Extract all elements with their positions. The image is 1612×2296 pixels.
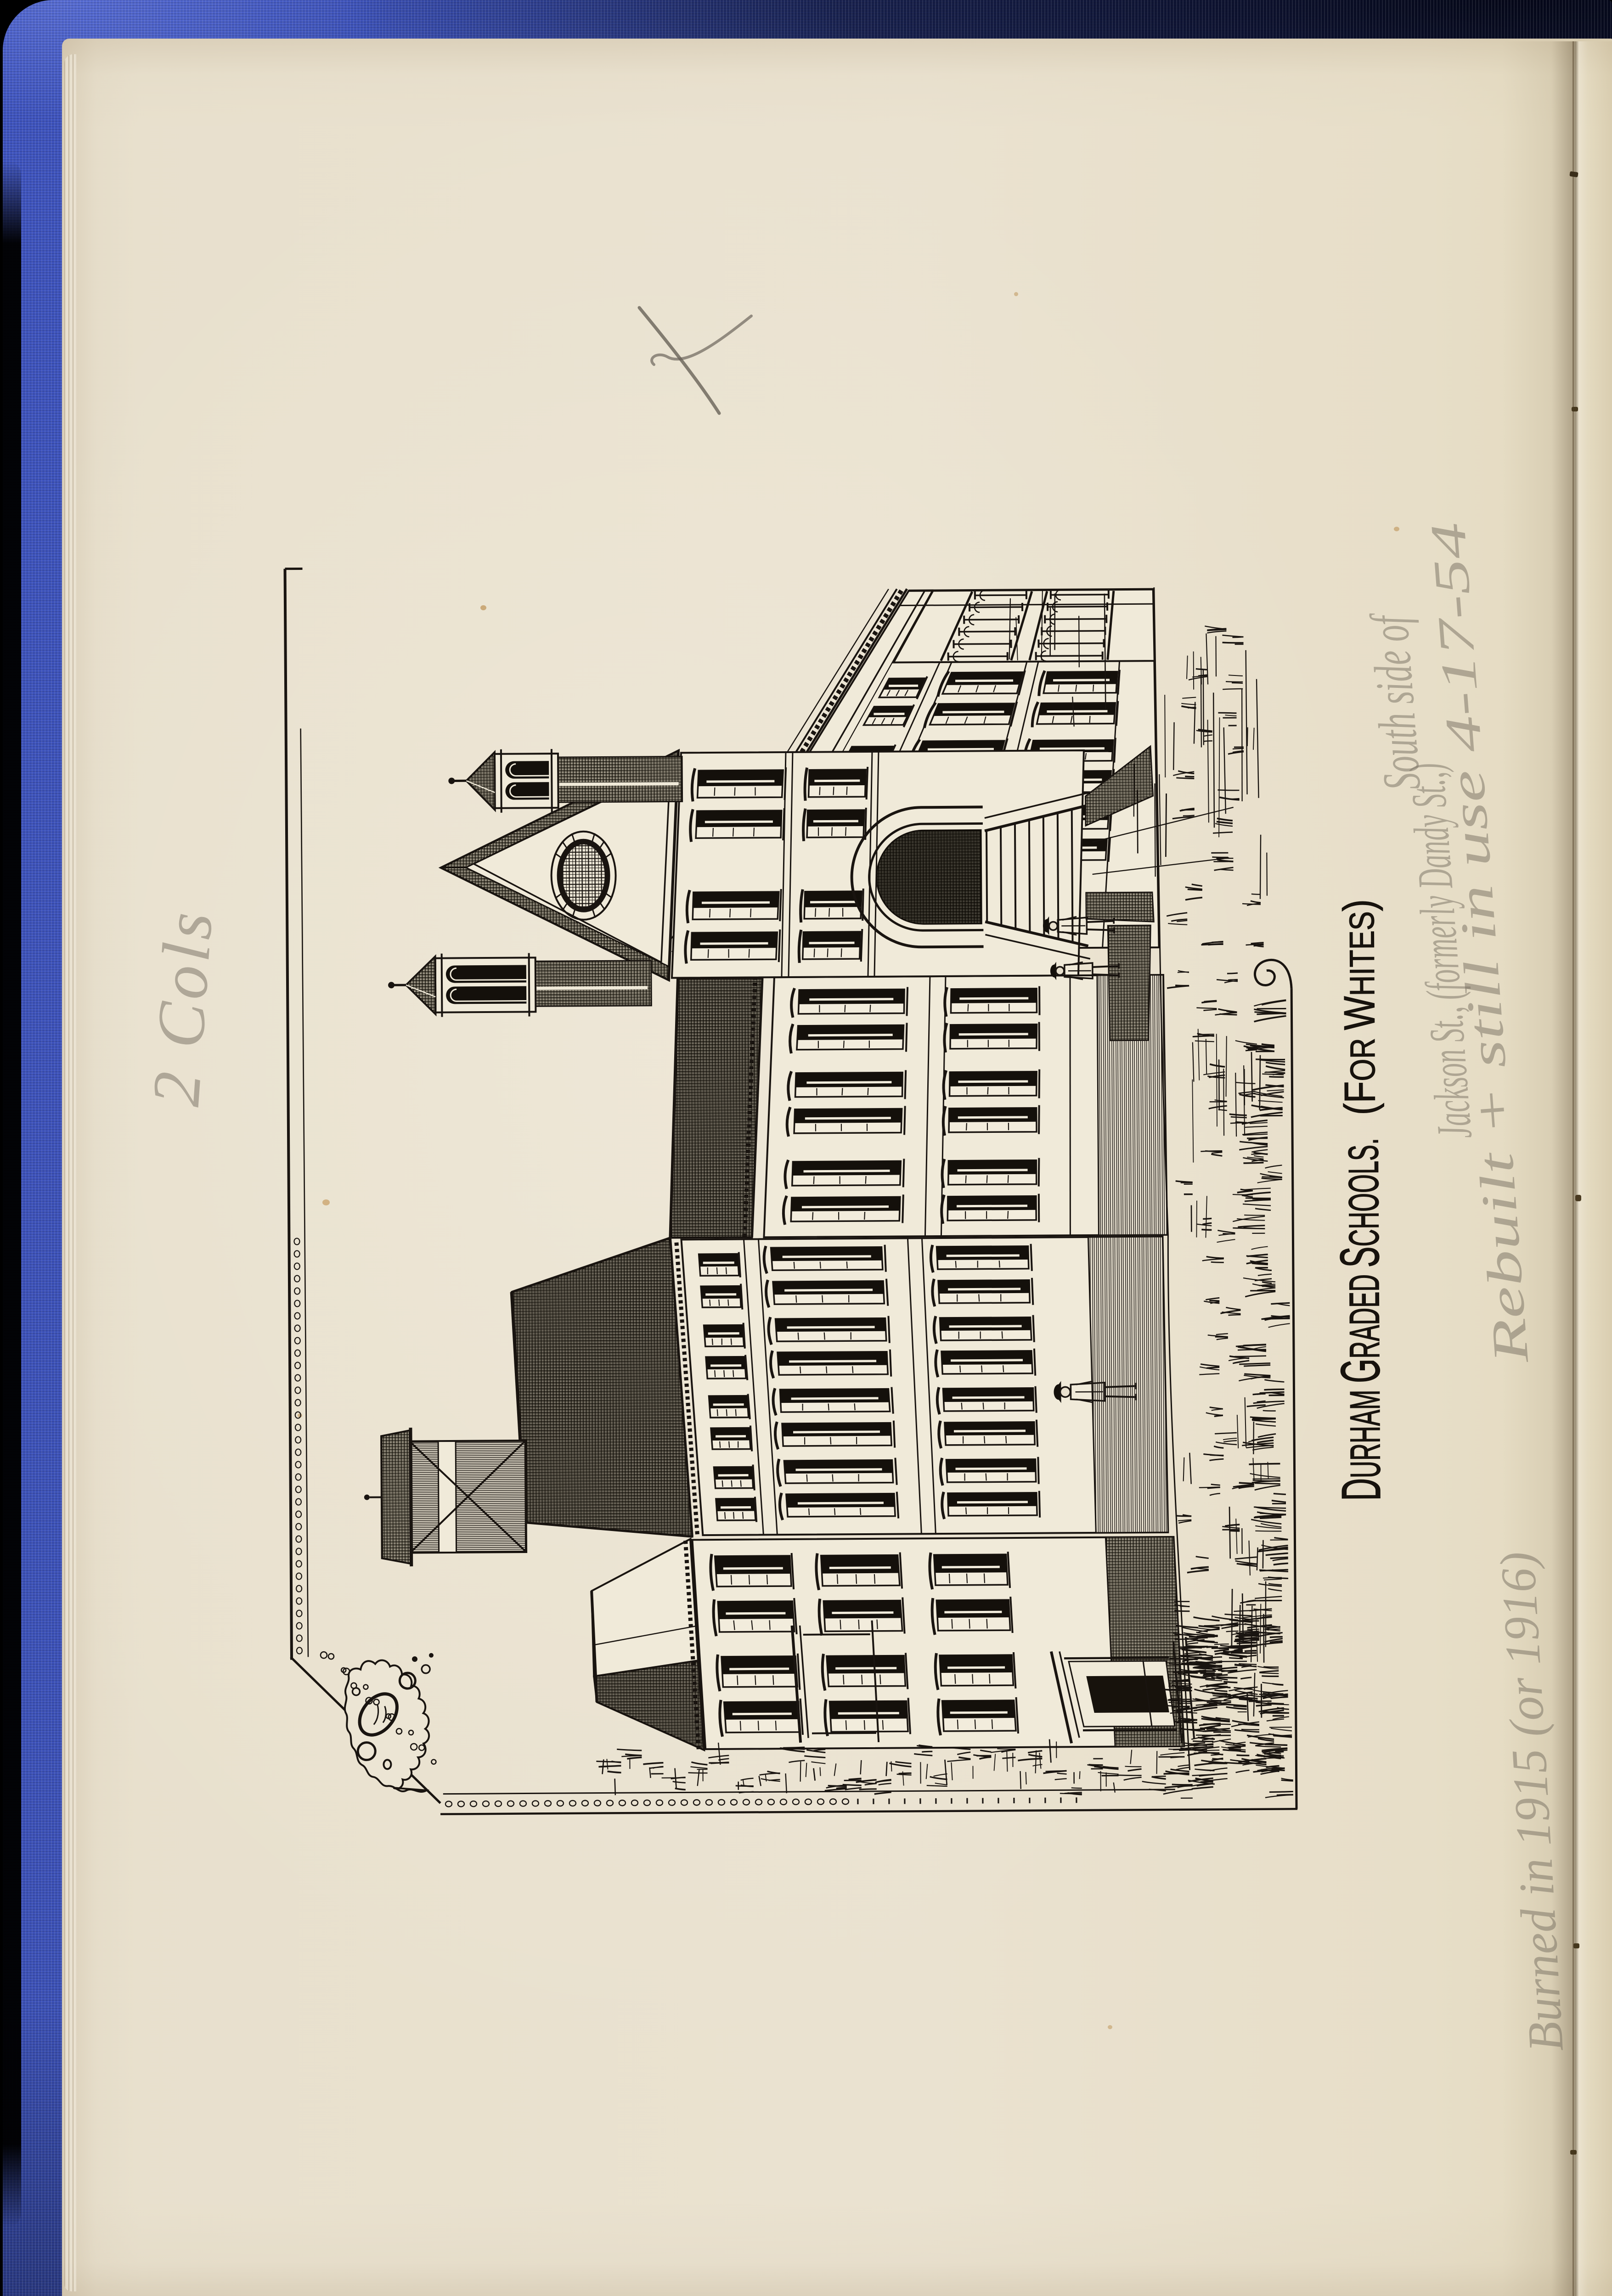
svg-text:Burned in 1915 (or 1916): Burned in 1915 (or 1916) <box>1490 1550 1573 2053</box>
svg-text:DURHAM GRADED SCHOOLS.: DURHAM GRADED SCHOOLS. <box>1328 1138 1392 1501</box>
svg-text:(FOR WHITES): (FOR WHITES) <box>1335 899 1385 1115</box>
